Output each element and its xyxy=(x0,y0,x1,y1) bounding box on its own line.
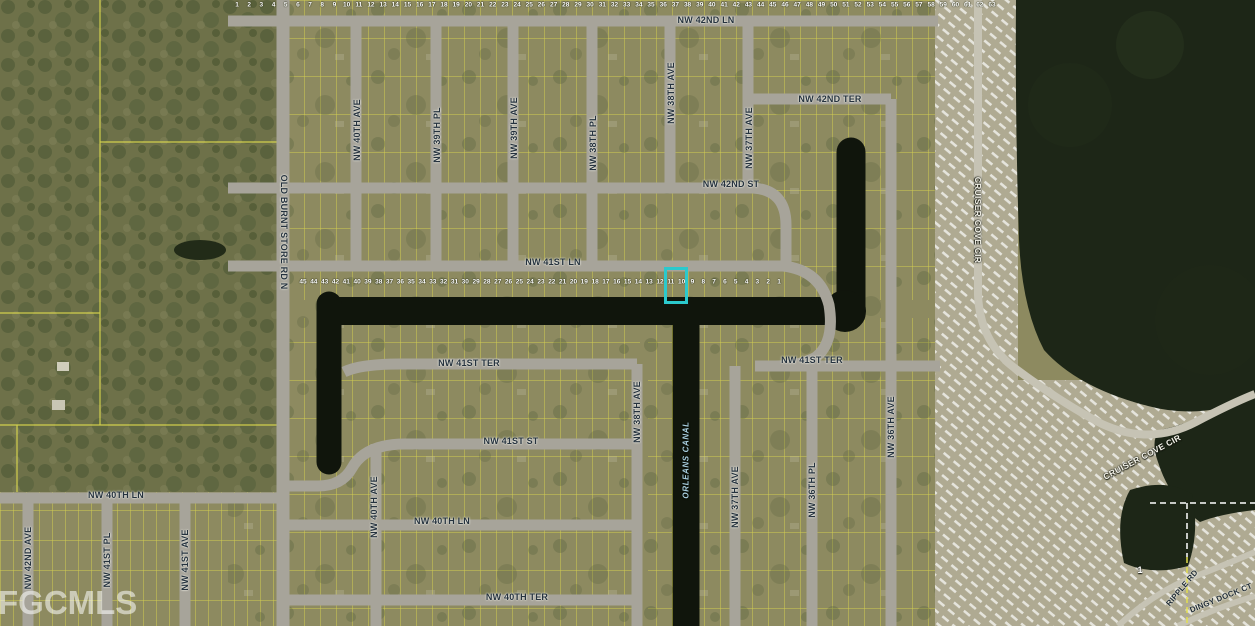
top-edge-lot-numbers: 34 xyxy=(635,2,642,9)
top-edge-lot-numbers: 29 xyxy=(574,2,581,9)
top-edge-lot-numbers: 57 xyxy=(915,2,922,9)
top-edge-lot-numbers: 17 xyxy=(428,2,435,9)
top-edge-lot-numbers: 25 xyxy=(526,2,533,9)
street-label-1: 1 xyxy=(1137,565,1142,575)
street-label-nw-39th-pl: NW 39TH PL xyxy=(432,107,442,163)
top-edge-lot-numbers: 9 xyxy=(333,2,337,9)
canal-front-lot-numbers: 29 xyxy=(472,279,479,286)
canal-front-lot-numbers: 9 xyxy=(691,279,695,286)
top-edge-lot-numbers: 41 xyxy=(720,2,727,9)
top-edge-lot-numbers: 48 xyxy=(806,2,813,9)
street-label-nw-42nd-ln: NW 42ND LN xyxy=(677,15,734,25)
top-edge-lot-numbers: 59 xyxy=(940,2,947,9)
street-label-cruiser-cove-cir: CRUISER COVE CIR xyxy=(973,177,983,264)
mls-watermark: FGCMLS xyxy=(0,586,137,619)
street-label-old-burnt-store-rd-n: OLD BURNT STORE RD N xyxy=(279,175,289,290)
street-label-nw-39th-ave: NW 39TH AVE xyxy=(509,97,519,159)
canal-front-lot-numbers: 8 xyxy=(701,279,705,286)
street-label-nw-42nd-ter: NW 42ND TER xyxy=(798,94,861,104)
top-edge-lot-numbers: 61 xyxy=(964,2,971,9)
canal-front-lot-numbers: 45 xyxy=(299,279,306,286)
street-label-nw-41st-ln: NW 41ST LN xyxy=(525,257,581,267)
top-edge-lot-numbers: 56 xyxy=(903,2,910,9)
top-edge-lot-numbers: 30 xyxy=(587,2,594,9)
street-label-nw-38th-pl: NW 38TH PL xyxy=(588,115,598,171)
street-label-nw-38th-ave: NW 38TH AVE xyxy=(632,381,642,443)
canal-front-lot-numbers: 28 xyxy=(483,279,490,286)
top-edge-lot-numbers: 39 xyxy=(696,2,703,9)
canal-front-lot-numbers: 21 xyxy=(559,279,566,286)
satellite-parcel-map[interactable]: NW 42ND LNNW 42ND TERNW 42ND STNW 41ST L… xyxy=(0,0,1255,626)
street-label-ripple-rd: RIPPLE RD xyxy=(1164,568,1199,608)
top-edge-lot-numbers: 53 xyxy=(867,2,874,9)
canal-front-lot-numbers: 12 xyxy=(656,279,663,286)
canal-front-lot-numbers: 39 xyxy=(364,279,371,286)
top-edge-lot-numbers: 22 xyxy=(489,2,496,9)
street-label-nw-41st-st: NW 41ST ST xyxy=(483,436,538,446)
top-edge-lot-numbers: 47 xyxy=(794,2,801,9)
top-edge-lot-numbers: 12 xyxy=(367,2,374,9)
top-edge-lot-numbers: 49 xyxy=(818,2,825,9)
canal-front-lot-numbers: 27 xyxy=(494,279,501,286)
canal-front-lot-numbers: 19 xyxy=(581,279,588,286)
street-label-nw-41st-ave: NW 41ST AVE xyxy=(180,529,190,590)
street-label-nw-37th-ave: NW 37TH AVE xyxy=(730,466,740,528)
top-edge-lot-numbers: 35 xyxy=(647,2,654,9)
top-edge-lot-numbers: 37 xyxy=(672,2,679,9)
top-edge-lot-numbers: 58 xyxy=(927,2,934,9)
top-edge-lot-numbers: 24 xyxy=(513,2,520,9)
street-label-nw-40th-ave: NW 40TH AVE xyxy=(352,99,362,161)
canal-front-lot-numbers: 7 xyxy=(712,279,716,286)
street-label-nw-42nd-ave: NW 42ND AVE xyxy=(23,527,33,590)
top-edge-lot-numbers: 45 xyxy=(769,2,776,9)
top-edge-lot-numbers: 6 xyxy=(296,2,300,9)
canal-front-lot-numbers: 2 xyxy=(766,279,770,286)
canal-front-lot-numbers: 24 xyxy=(527,279,534,286)
street-label-cruiser-cove-cir: CRUISER COVE CIR xyxy=(1101,432,1182,481)
top-edge-lot-numbers: 15 xyxy=(404,2,411,9)
street-label-nw-42nd-st: NW 42ND ST xyxy=(703,179,760,189)
top-edge-lot-numbers: 60 xyxy=(952,2,959,9)
canal-front-lot-numbers: 16 xyxy=(613,279,620,286)
top-edge-lot-numbers: 50 xyxy=(830,2,837,9)
top-edge-lot-numbers: 46 xyxy=(781,2,788,9)
street-label-nw-36th-pl: NW 36TH PL xyxy=(807,462,817,518)
canal-front-lot-numbers: 26 xyxy=(505,279,512,286)
top-edge-lot-numbers: 36 xyxy=(660,2,667,9)
top-edge-lot-numbers: 8 xyxy=(320,2,324,9)
canal-front-lot-numbers: 44 xyxy=(310,279,317,286)
canal-front-lot-numbers: 36 xyxy=(397,279,404,286)
canal-front-lot-numbers: 20 xyxy=(570,279,577,286)
street-label-dingy-dock-ct: DINGY DOCK CT xyxy=(1188,581,1253,614)
canal-front-lot-numbers: 32 xyxy=(440,279,447,286)
canal-front-lot-numbers: 22 xyxy=(548,279,555,286)
canal-front-lot-numbers: 4 xyxy=(745,279,749,286)
top-edge-lot-numbers: 11 xyxy=(355,2,362,9)
canal-front-lot-numbers: 14 xyxy=(635,279,642,286)
top-edge-lot-numbers: 44 xyxy=(757,2,764,9)
canal-front-lot-numbers: 31 xyxy=(451,279,458,286)
top-edge-lot-numbers: 13 xyxy=(380,2,387,9)
canal-front-lot-numbers: 30 xyxy=(462,279,469,286)
top-edge-lot-numbers: 52 xyxy=(854,2,861,9)
canal-front-lot-numbers: 41 xyxy=(343,279,350,286)
street-label-nw-36th-ave: NW 36TH AVE xyxy=(886,396,896,458)
canal-front-lot-numbers: 5 xyxy=(734,279,738,286)
water-label-orleans-canal: ORLEANS CANAL xyxy=(682,421,691,498)
top-edge-lot-numbers: 4 xyxy=(272,2,276,9)
canal-front-lot-numbers: 43 xyxy=(321,279,328,286)
top-edge-lot-numbers: 42 xyxy=(733,2,740,9)
top-edge-lot-numbers: 23 xyxy=(501,2,508,9)
top-edge-lot-numbers: 43 xyxy=(745,2,752,9)
canal-front-lot-numbers: 33 xyxy=(429,279,436,286)
top-edge-lot-numbers: 62 xyxy=(976,2,983,9)
top-edge-lot-numbers: 32 xyxy=(611,2,618,9)
street-label-nw-40th-ave: NW 40TH AVE xyxy=(369,476,379,538)
canal-front-lot-numbers: 40 xyxy=(353,279,360,286)
canal-front-lot-numbers: 1 xyxy=(777,279,781,286)
canal-front-lot-numbers: 23 xyxy=(537,279,544,286)
canal-front-lot-numbers: 15 xyxy=(624,279,631,286)
street-label-nw-37th-ave: NW 37TH AVE xyxy=(744,107,754,169)
top-edge-lot-numbers: 16 xyxy=(416,2,423,9)
canal-front-lot-numbers: 13 xyxy=(646,279,653,286)
top-edge-lot-numbers: 19 xyxy=(453,2,460,9)
top-edge-lot-numbers: 55 xyxy=(891,2,898,9)
canal-front-lot-numbers: 42 xyxy=(332,279,339,286)
street-label-nw-40th-ln: NW 40TH LN xyxy=(414,516,470,526)
canal-front-lot-numbers: 18 xyxy=(591,279,598,286)
top-edge-lot-numbers: 1 xyxy=(235,2,239,9)
top-edge-lot-numbers: 3 xyxy=(260,2,264,9)
top-edge-lot-numbers: 20 xyxy=(465,2,472,9)
top-edge-lot-numbers: 33 xyxy=(623,2,630,9)
canal-front-lot-numbers: 17 xyxy=(602,279,609,286)
street-label-nw-40th-ter: NW 40TH TER xyxy=(486,592,548,602)
top-edge-lot-numbers: 63 xyxy=(988,2,995,9)
top-edge-lot-numbers: 38 xyxy=(684,2,691,9)
top-edge-lot-numbers: 51 xyxy=(842,2,849,9)
street-label-nw-41st-ter: NW 41ST TER xyxy=(438,358,500,368)
top-edge-lot-numbers: 21 xyxy=(477,2,484,9)
top-edge-lot-numbers: 18 xyxy=(440,2,447,9)
canal-front-lot-numbers: 25 xyxy=(516,279,523,286)
canal-front-lot-numbers: 37 xyxy=(386,279,393,286)
top-edge-lot-numbers: 31 xyxy=(599,2,606,9)
top-edge-lot-numbers: 7 xyxy=(308,2,312,9)
canal-front-lot-numbers: 6 xyxy=(723,279,727,286)
top-edge-lot-numbers: 5 xyxy=(284,2,288,9)
top-edge-lot-numbers: 10 xyxy=(343,2,350,9)
map-overlay: NW 42ND LNNW 42ND TERNW 42ND STNW 41ST L… xyxy=(0,0,1255,626)
street-label-nw-38th-ave: NW 38TH AVE xyxy=(666,62,676,124)
top-edge-lot-numbers: 40 xyxy=(708,2,715,9)
top-edge-lot-numbers: 2 xyxy=(247,2,251,9)
top-edge-lot-numbers: 26 xyxy=(538,2,545,9)
canal-front-lot-numbers: 34 xyxy=(418,279,425,286)
canal-front-lot-numbers: 3 xyxy=(756,279,760,286)
highlighted-parcel[interactable] xyxy=(664,267,688,304)
top-edge-lot-numbers: 27 xyxy=(550,2,557,9)
street-label-nw-41st-ter: NW 41ST TER xyxy=(781,355,843,365)
top-edge-lot-numbers: 14 xyxy=(392,2,399,9)
street-label-nw-41st-pl: NW 41ST PL xyxy=(102,532,112,587)
canal-front-lot-numbers: 38 xyxy=(375,279,382,286)
top-edge-lot-numbers: 28 xyxy=(562,2,569,9)
top-edge-lot-numbers: 54 xyxy=(879,2,886,9)
canal-front-lot-numbers: 35 xyxy=(408,279,415,286)
street-label-nw-40th-ln: NW 40TH LN xyxy=(88,490,144,500)
